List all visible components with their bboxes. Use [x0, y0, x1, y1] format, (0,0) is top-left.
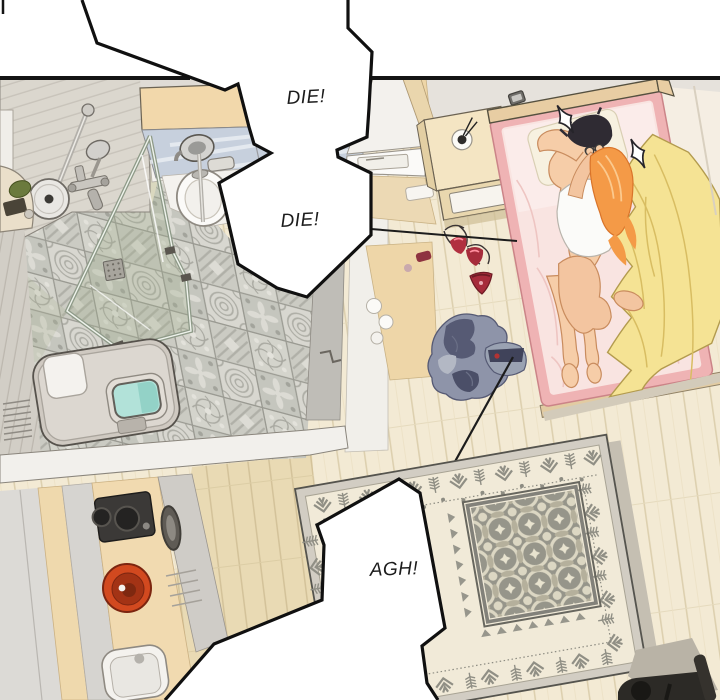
svg-text:DIE!: DIE!	[280, 209, 320, 232]
svg-text:DIE!: DIE!	[286, 86, 326, 109]
svg-text:AGH!: AGH!	[368, 558, 418, 581]
